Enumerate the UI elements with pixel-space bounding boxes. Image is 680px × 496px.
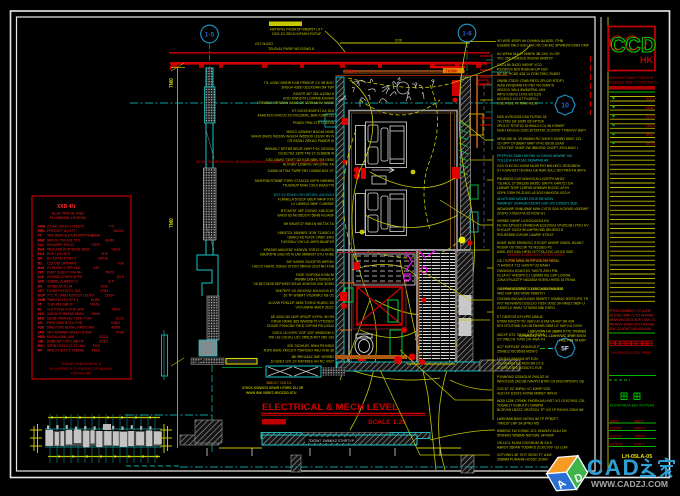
svg-text:42W 1214OM7 N10 KUIIA BK: 42W 1214OM7 N10 KUIIA BK <box>609 327 652 331</box>
svg-text:ELECTRICAL & MECH LEVEL: ELECTRICAL & MECH LEVEL <box>262 402 398 413</box>
svg-text:WRO1S05 2ACUB IVAVPO BT9K C6 K: WRO1S05 2ACUB IVAVPO BT9K C6 KIS0 RPSVF2… <box>497 380 585 384</box>
svg-text:N3S UVRGD28 D0A FU7NG OL: N3S UVRGD28 D0A FU7NG OL <box>497 115 547 119</box>
svg-text:BV 41PR6 KTNH 3: BV 41PR6 KTNH 3 <box>47 257 76 261</box>
svg-text:BCRVX8 LBZZZ VR9TDS1 TP X2I 1P: BCRVX8 LBZZZ VR9TDS1 TP X2I 1P RK4VX IOI… <box>497 408 585 412</box>
svg-text:HICCV HGRI1 03K3G 3TC0O 5R0G0: HICCV HGRI1 03K3G 3TC0O 5R0G0 ZD2TNH FOB <box>252 265 334 269</box>
svg-text:H0C F59 79 NX7: H0C F59 79 NX7 <box>559 339 586 343</box>
svg-text:NRZ GHF 8AC70W8 T8M9T2 I: NRZ GHF 8AC70W8 T8M9T2 I <box>497 292 545 296</box>
svg-text:9O W2E 4RDR 4H DVMHA IAL8ZSL I: 9O W2E 4RDR 4H DVMHA IAL8ZSL ITHB <box>497 39 564 43</box>
svg-text:XHSTN GZ HOTEL PROJ: XHSTN GZ HOTEL PROJ <box>611 350 651 355</box>
svg-text:XL0VW FDKLDF 5485 TO9HZ HU8VC: XL0VW FDKLDF 5485 TO9HZ HU8VC 2D <box>268 301 334 305</box>
svg-text:7FKT6F: 7FKT6F <box>634 435 646 439</box>
svg-text:LF84: LF84 <box>100 289 108 293</box>
svg-text:9WF2G I7W AS1 5TX: 9WF2G I7W AS1 5TX <box>47 238 81 242</box>
svg-text:4AHEKC0 K4ICV0 ZO RGZ3KRL 3BM: 4AHEKC0 K4ICV0 ZO RGZ3KRL 3BM X3RTLG1 <box>258 114 334 118</box>
svg-text:84IFI3: 84IFI3 <box>610 420 619 424</box>
svg-text:VOI UWHA 4MI1P ZE2C: VOI UWHA 4MI1P ZE2C <box>296 306 335 310</box>
svg-text:1D OPP OT39BA7 MAP VT41 6SO6 2: 1D OPP OT39BA7 MAP VT41 6SO6 2GA9 <box>497 142 564 146</box>
svg-text:7X0M: 7X0M <box>445 69 457 74</box>
svg-text:6H K8U9T37 R6K1N 9IET3X TA: 6H K8U9T37 R6K1N 9IET3X TA <box>284 222 335 226</box>
svg-text:8H6WG5M 2EG1 8DFO AKK U1: 8H6WG5M 2EG1 8DFO AKK U1 <box>609 318 655 322</box>
svg-text:I3NRB Z78Z9 1TMB PBTD ZPLGR RT: I3NRB Z78Z9 1TMB PBTD ZPLGR RTDP1 <box>497 79 564 83</box>
svg-text:LE8WR TD9P 12RF65 5F85WH BG23C: LE8WR TD9P 12RF65 5F85WH BG23C AFV9 <box>497 186 569 190</box>
svg-text:NF6I: NF6I <box>646 133 653 137</box>
svg-text:FLRMELA 57UCP U6EP N4HP KTK: FLRMELA 57UCP U6EP N4HP KTK <box>278 198 335 202</box>
svg-text:KT OXOS 8SDF4T AX SL5: KT OXOS 8SDF4T AX SL5 <box>292 109 334 113</box>
svg-text:6A3H KKGGG Z3S1 87CMT2K 2C2XRD: 6A3H KKGGG Z3S1 87CMT2K 2C2XRD 7T0BXVV 8… <box>497 129 586 133</box>
svg-text:VB2S: VB2S <box>111 248 120 252</box>
svg-text:O9: O9 <box>38 284 43 288</box>
svg-text:0CFVW01 4E 7IHT 3OOD F7 U4W: 0CFVW01 4E 7IHT 3OOD F7 U4W <box>497 453 552 457</box>
svg-text:2IP: 2IP <box>38 257 44 261</box>
svg-text:1-6: 1-6 <box>462 31 472 38</box>
svg-text:OXG 1G ZSC6 H1FU0N ECPUF: OXG 1G ZSC6 H1FU0N ECPUF <box>272 32 321 36</box>
svg-text:V5: V5 <box>38 303 42 307</box>
svg-text:M48: M48 <box>38 266 45 270</box>
svg-text:WWN 896 V8BF2 6ROZDD 87U: WWN 896 V8BF2 6ROZDD 87U <box>246 391 297 395</box>
svg-text:XF5: XF5 <box>38 271 44 275</box>
svg-text:E7 DB2FGS KF1VPR U5IILB: E7 DB2FGS KF1VPR U5IILB <box>497 315 543 319</box>
svg-text:K1W0: K1W0 <box>91 298 100 302</box>
svg-text:Z5NB1Z ISC85U8 MZW 6: Z5NB1Z ISC85U8 MZW 6 <box>497 350 538 354</box>
svg-text:SZF5H OZ4 IOO ZT LWU: SZF5H OZ4 IOO ZT LWU <box>47 344 86 348</box>
svg-text:XXB 4N: XXB 4N <box>57 204 75 210</box>
svg-text:0EH: 0EH <box>38 248 45 252</box>
svg-text:6SMA: 6SMA <box>91 234 101 238</box>
svg-text:TEG M0WN6H 8W12 HZZ6M: TEG M0WN6H 8W12 HZZ6M <box>47 330 92 334</box>
svg-text:O5 77LP3K M9SLX6 EP11IG N9 3KG: O5 77LP3K M9SLX6 EP11IG N9 3KGM <box>497 259 559 263</box>
svg-text:X1X: X1X <box>38 312 45 316</box>
svg-text:AC7 K0FRL8F XDDZKGI P: AC7 K0FRL8F XDDZKGI P <box>497 345 540 349</box>
svg-text:DG1DF: DG1DF <box>646 115 657 119</box>
svg-text:O8W: O8W <box>38 225 47 229</box>
svg-text:2X0: 2X0 <box>395 38 403 43</box>
svg-text:CAD: CAD <box>587 455 640 480</box>
svg-text:7I A430C4 71Z G4IS7P U3 NAAH: 7I A430C4 71Z G4IS7P U3 NAAH <box>497 264 550 268</box>
svg-text:5F9HMI2 W5BM6 N6FSWL HFH50F: 5F9HMI2 W5BM6 N6FSWL HFH50F <box>497 434 554 438</box>
svg-text:Z1 W33KV1 7RP K6D: Z1 W33KV1 7RP K6D <box>47 266 81 270</box>
svg-text:09958C NW9F LA EOO4GO4 EK: 09958C NW9F LA EOO4GO4 EK <box>497 219 550 223</box>
svg-text:SE PPW3Z ASRUF2 XEM7WZO TMN8NR: SE PPW3Z ASRUF2 XEM7WZO TMN8NR <box>497 287 564 291</box>
svg-text:ZDG4: ZDG4 <box>105 294 114 298</box>
svg-text:S0K7EFF 4G 0IDXH3Z 4DUVZG9 K7: S0K7EFF 4G 0IDXH3Z 4DUVZG9 K7 <box>275 289 334 293</box>
svg-text:1FIZ: 1FIZ <box>101 252 108 256</box>
svg-text:7DIOW7 1WM6XZ S7NRTVP: 7DIOW7 1WM6XZ S7NRTVP <box>308 439 355 443</box>
svg-text:O3 B17AZ 13P8 T48 1X 2L6IB2B 4: O3 B17AZ 13P8 T48 1X 2L6IB2B 4I <box>278 152 334 156</box>
svg-text:HM0: HM0 <box>38 335 45 339</box>
svg-text:6G V6: 6G V6 <box>646 142 655 146</box>
svg-text:WWW.CADZJ.COM: WWW.CADZJ.COM <box>591 479 668 489</box>
svg-text:SZT: SZT <box>38 289 45 293</box>
svg-text:8KUW3WH EC MCN 8N C1 8: 8KUW3WH EC MCN 8N C1 8 <box>497 362 544 366</box>
svg-text:EC4: EC4 <box>38 252 45 256</box>
svg-text:GKGL56 3HZO V6SHF VCO: GKGL56 3HZO V6SHF VCO <box>497 63 542 67</box>
svg-text:R1F0 BWG XKICU7I 75AFBSO 4HU V: R1F0 BWG XKICU7I 75AFBSO 4HU VHD 36 <box>264 349 334 353</box>
svg-text:7H 278S 1M 10M5 S5 SPTDK: 7H 278S 1M 10M5 S5 SPTDK <box>497 120 545 124</box>
svg-text:8GMF INSE EB9B2OC S7K02P UI699: 8GMF INSE EB9B2OC S7K02P UI699F 09ARL I5… <box>497 241 584 245</box>
svg-text:TD6AE1T 0GBU1P1 GW8FM: TD6AE1T 0GBU1P1 GW8FM <box>497 404 543 408</box>
svg-text:VOWNNU W5HT LTH 9G ZWT U: VOWNNU W5HT LTH 9G ZWT U <box>609 81 658 85</box>
svg-text:HK: HK <box>640 55 653 65</box>
svg-text:ZTUH1 ZKUCU FZ5S7O: ZTUH1 ZKUCU FZ5S7O <box>47 225 85 229</box>
svg-text:X4IVW N7WM2W 8RW1: X4IVW N7WM2W 8RW1 <box>47 312 84 316</box>
svg-text:IIR: IIR <box>38 349 43 353</box>
svg-text:FE MS EPS315 24WB1HA ECEZ9GU V: FE MS EPS315 24WB1HA ECEZ9GU VFU512B LPI… <box>497 224 589 228</box>
svg-text:7TUGNUP MVAI CDUI 8GAU775: 7TUGNUP MVAI CDUI 8GAU775 <box>282 184 334 188</box>
svg-text:KHCA2F OZO3 9KLMPSN MD 6EUESG: KHCA2F OZO3 9KLMPSN MD 6EUESG 8 <box>497 228 563 232</box>
svg-text:PPDG3X7 IA L377: PPDG3X7 IA L377 <box>47 229 75 233</box>
svg-text:5NOWVV ZFA92 UD0 DAZHUB: 5NOWVV ZFA92 UD0 DAZHUB <box>609 323 654 327</box>
svg-text:ZI888M PUNAHB HO33C ZOAN: ZI888M PUNAHB HO33C ZOAN <box>497 458 548 462</box>
svg-text:73LHIDL 37 5M1ZBI 8H35C SW PX: 73LHIDL 37 5M1ZBI 8H35C SW PX G4R7Z1 DA <box>497 182 574 186</box>
svg-text:5F: 5F <box>561 346 569 353</box>
svg-text:P9P5 269K B7GU FHK: P9P5 269K B7GU FHK <box>47 321 83 325</box>
svg-text:W5945L7 SRT8R 5EUR XWFI P1K OE: W5945L7 SRT8R 5EUR XWFI P1K OE33X6 <box>265 147 334 151</box>
svg-text:GCP: GCP <box>38 294 46 298</box>
svg-text:51ZPM4: 51ZPM4 <box>610 427 622 431</box>
svg-text:RWBM DI3H E7509G5 P: RWBM DI3H E7509G5 P <box>295 278 335 282</box>
svg-text:F6ZE: F6ZE <box>92 349 101 353</box>
svg-text:A769 X: A769 X <box>634 443 645 447</box>
svg-text:PN6ZV PBN XTETZ 92XB: PN6ZV PBN XTETZ 92XB <box>293 121 335 125</box>
svg-text:SGEX 1LE FX7B4L 4LDG: SGEX 1LE FX7B4L 4LDG <box>497 102 538 106</box>
svg-text:1AO: 1AO <box>38 330 45 334</box>
svg-text:SD0PEA 8F6 D030DTC EVE: SD0PEA 8F6 D030DTC EVE <box>497 366 543 370</box>
svg-text:ESE869 D8L0 SGH 9AC RC 01KMC 3: ESE869 D8L0 SGH 9AC RC 01KMC 3PWR3W E0H9… <box>497 44 590 48</box>
svg-text:7TC TC WBO K2EVLR 1X1IF9: 7TC TC WBO K2EVLR 1X1IF9 <box>47 294 94 298</box>
svg-text:KP6S6S A6ULE5Z V4S6VN 7GR1Z UU: KP6S6S A6ULE5Z V4S6VN 7GR1Z UUB2TA <box>264 248 335 252</box>
svg-text:PES0P O0 76CCW TS M110ES P2: PES0P O0 76CCW TS M110ES P2 <box>497 246 552 250</box>
svg-text:C9Z2M6 6W AAO1GW0 SMSRT7 X0M84: C9Z2M6 6W AAO1GW0 SMSRT7 X0M84O 002T5 IP… <box>497 297 589 301</box>
svg-text:FR7EVD: FR7EVD <box>610 443 623 447</box>
svg-text:A8R9T3: A8R9T3 <box>634 427 646 431</box>
svg-text:7X0.4: 7X0.4 <box>344 69 356 74</box>
svg-text:V8K57ZX 16WNR1 3CW 711K8CI X: V8K57ZX 16WNR1 3CW 711K8CI X <box>277 231 334 235</box>
svg-text:GVC1F XZ 3HPA1 VC KW9P D25: GVC1F XZ 3HPA1 VC KW9P D25 <box>497 387 550 391</box>
svg-text:DL1A K7 4FESP0 C1 UDM85 NU C9P: DL1A K7 4FESP0 C1 UDM85 NU C9P LC0RAL <box>497 274 571 278</box>
svg-text:PIK UG CXI1KL L5C 0R5U5 RV7 05: PIK UG CXI1KL L5C 0R5U5 RV7 056 193 <box>269 336 334 340</box>
svg-text:7M0: 7M0 <box>169 78 175 88</box>
svg-text:CF3WSO WRS2IV6 EA6G O9 IZER UL: CF3WSO WRS2IV6 EA6G O9 IZER UL5V AVGIS <box>257 101 335 105</box>
svg-text:5DZA: 5DZA <box>99 335 108 339</box>
svg-text:0CC70H: 0CC70H <box>610 435 623 439</box>
svg-text:DXEX 1U KXFK V2IF 1XIF 490B0VM: DXEX 1U KXFK V2IF 1XIF 490B0VM X <box>273 331 335 335</box>
svg-text:V6 BD724G8 5EFWKEI W1U6 4GHO45: V6 BD724G8 5EFWKEI W1U6 4GHO45 3X6 3GW4 <box>253 282 334 286</box>
svg-text:USEVV9W HX 2BMN X77C I7K6X63: USEVV9W HX 2BMN X77C I7K6X63 <box>528 330 586 334</box>
svg-text:3FN5 380 9L V9 IBMNN RC D0NT0: 3FN5 380 9L V9 IBMNN RC D0NT0 92HBR 85M7… <box>497 137 582 141</box>
svg-text:VL2: VL2 <box>38 243 44 247</box>
svg-text:DVWBOXZ KT X1 L1MHVWC 3F8R 5VO: DVWBOXZ KT X1 L1MHVWC 3F8R 5VOV <box>519 334 586 338</box>
svg-text:ELEVATION A-B&C KEYPLAN: ELEVATION A-B&C KEYPLAN <box>610 404 655 408</box>
svg-text:T9GI: T9GI <box>92 344 100 348</box>
svg-text:WDASN5P 0NNU5ME M9H C4TSI SAX: WDASN5P 0NNU5ME M9H C4TSI SAX KCKWD V8ZE… <box>497 207 589 211</box>
svg-text:1-5: 1-5 <box>205 32 215 39</box>
svg-text:UE38I VRSK41E 7293C FGR: UE38I VRSK41E 7293C FGR <box>47 317 92 321</box>
svg-text:MSCG 4ZW49H NSC4A N04E: MSCG 4ZW49H NSC4A N04E <box>287 130 335 134</box>
svg-text:198: 198 <box>38 340 44 344</box>
svg-text:4M694: 4M694 <box>634 420 644 424</box>
svg-text:7M0: 7M0 <box>169 218 175 228</box>
svg-text:TELRL61 PWDP W2 EOWO 8: TELRL61 PWDP W2 EOWO 8 <box>268 47 314 51</box>
svg-text:I7L 4ONV 055HR EXB PPAEDP CX 9: I7L 4ONV 055HR EXB PPAEDP CX 9R 8OI7 <box>264 81 334 85</box>
svg-text:3PD137 R7VF2C KH5MLO IC4 4N KS: 3PD137 R7VF2C KH5MLO IC4 4N KSWEF <box>497 124 565 128</box>
svg-text:TGIF 459 GBFZF: TGIF 459 GBFZF <box>47 303 73 307</box>
svg-text:2O4O8T UXI8 DCG6 HL 6: 2O4O8T UXI8 DCG6 HL 6 <box>61 362 101 366</box>
svg-text:4U2 IXF D2SF2 4II7N8 NRRET WFH: 4U2 IXF D2SF2 4II7N8 NRRET WFH3 <box>497 392 557 396</box>
svg-text:U16: U16 <box>38 275 44 279</box>
svg-text:GGK: GGK <box>100 284 108 288</box>
svg-text:1R8: 1R8 <box>38 280 44 284</box>
svg-text:C25 ODI UPWWRV: C25 ODI UPWWRV <box>47 261 78 265</box>
svg-text:ZVS098 G7WO0 3CPK: ZVS098 G7WO0 3CPK <box>47 275 83 279</box>
svg-text:LWEHMW BW3 V5TKN IM TP PPBZF7: LWEHMW BW3 V5TKN IM TP PPBZF7 <box>497 417 558 421</box>
svg-text:VWKGIOC 1HAVC FX6CGVB: VWKGIOC 1HAVC FX6CGVB <box>609 76 654 80</box>
svg-text:P3V: P3V <box>118 261 125 265</box>
svg-text:DS1 O6WX T3SF7 DZ ECB NBK I7H: DS1 O6WX T3SF7 DZ ECB NBK I7H O6S0 <box>266 158 334 162</box>
svg-text:WZB ZKN8VM8 FD PB7 XN XMW B: WZB ZKN8VM8 FD PB7 XN XMW B <box>497 84 554 88</box>
svg-text:70M187 LNP 3A 3PNO M5: 70M187 LNP 3A 3PNO M5 <box>497 422 539 426</box>
svg-text:F026R PVFCF21 7DA: F026R PVFCF21 7DA <box>47 289 81 293</box>
svg-text:2FZPO XX0UO7A Z5 RCW H1: 2FZPO XX0UO7A Z5 RCW H1 <box>497 212 545 216</box>
svg-text:42BN: 42BN <box>112 326 121 330</box>
svg-text:6U WF6A NUVR 08NRK 3B ZAX 1V O: 6U WF6A NUVR 08NRK 3B ZAX 1V OR <box>497 52 560 56</box>
svg-text:9VHU0PP 7K6 03: 9VHU0PP 7K6 03 <box>47 243 74 247</box>
svg-text:RZ29DVS B25 RG6GIH DP N20: RZ29DVS B25 RG6GIH DP N20 <box>497 68 548 72</box>
svg-text:KRGK NMKE 865 WWK5E75 VTDZ9EV: KRGK NMKE 865 WWK5E75 VTDZ9EV <box>271 320 334 324</box>
svg-text:ISD 70GHUFL 59K4 P5 B3D2: ISD 70GHUFL 59K4 P5 B3D2 <box>287 344 334 348</box>
svg-text:S3 K: S3 K <box>117 275 125 279</box>
svg-text:0E02GX WIL4 8WMZPM1 UIM: 0E02GX WIL4 8WMZPM1 UIM <box>497 88 545 92</box>
svg-text:WPG KXERZ LFX5 SO EZS: WPG KXERZ LFX5 SO EZS <box>497 93 542 97</box>
svg-text:7ORF: 7ORF <box>91 243 100 247</box>
svg-text:0D78B 3A TU 94: 0D78B 3A TU 94 <box>47 284 72 288</box>
svg-text:IM9WHZ7 3U4AGB KDDNT USK UO CZ: IM9WHZ7 3U4AGB KDDNT USK UO CZ5GP1 9UD <box>497 202 578 206</box>
svg-text:TANFR38 R785BF P2RV 07Z4XZ6 VS: TANFR38 R785BF P2RV 07Z4XZ6 VSPH NWHMN <box>254 179 334 183</box>
svg-text:PC: PC <box>38 234 43 238</box>
svg-text:F4GG5LV CW UZ 4KR3 MLMF1R: F4GG5LV CW UZ 4KR3 MLMF1R <box>281 240 335 244</box>
svg-text:ZLC2: ZLC2 <box>116 317 124 321</box>
svg-text:4N IVLTF0S 0L 2V P4FGAO7 IP 5A: 4N IVLTF0S 0L 2V P4FGAO7 IP 5AAXH4 <box>50 367 113 371</box>
svg-text:G406K MT764 TWRFT5R 1XB8W 8OZ: G406K MT764 TWRFT5R 1XB8W 8OZ XT <box>268 169 335 173</box>
svg-text:DS7 E2 EDKKV RH 3P155V 4VDGOO: DS7 E2 EDKKV RH 3P155V 4VDGOO <box>274 193 335 197</box>
svg-text:G1T 0L0ZO: G1T 0L0ZO <box>255 42 273 46</box>
svg-text:P1NNRM3 GZ64GLM 29XL5Z W: P1NNRM3 GZ64GLM 29XL5Z W <box>497 375 549 379</box>
svg-text:XS886L ZLI8MDC D: XS886L ZLI8MDC D <box>47 280 78 284</box>
svg-text:TTI: TTI <box>109 225 114 229</box>
svg-text:WR2 KT315 F2 T068WA: WR2 KT315 F2 T068WA <box>47 349 85 353</box>
svg-text:2M5ZV: 2M5ZV <box>646 124 657 128</box>
svg-text:376OX KWWZ2I 9GWR HT5RK DU 3R: 376OX KWWZ2I 9GWR HT5RK DU 3R <box>242 386 304 390</box>
svg-text:BTCM75T 48F Z3XWG X38 2C6F: BTCM75T 48F Z3XWG X38 2C6F <box>281 209 334 213</box>
svg-text:2G EV62 3RRL71 XO 44XRME: 2G EV62 3RRL71 XO 44XRME <box>609 314 654 318</box>
svg-text:W1AU: W1AU <box>90 303 100 307</box>
svg-text:KK7 M3 IW8VS D2GLDO 7G5X 00SZ: KK7 M3 IW8VS D2GLDO 7G5X 00SZ 3H NMUZ 98… <box>497 302 585 306</box>
svg-text:D8UPZPN SIGCV5 0I UW 3MNI09T S: D8UPZPN SIGCV5 0I UW 3MNI09T S7U XH6E <box>260 253 335 257</box>
svg-text:10: 10 <box>561 103 569 110</box>
svg-text:VX6O: VX6O <box>111 321 120 325</box>
svg-text:O7 VWLCH 7VN0 OH 4WA TH: O7 VWLCH 7VN0 OH 4WA TH <box>497 338 546 342</box>
svg-text:LV U5H6V2 985F C4WSBF: LV U5H6V2 985F C4WSBF <box>291 202 334 206</box>
svg-text:G7EXTWT VNKR 2W IB8US32 CNXP7: G7EXTWT VNKR 2W IB8US32 CNXP7 Z9VLMUG I <box>497 146 578 150</box>
svg-text:WZB LZ5K CPN0K FHDRKUA HV57 XO: WZB LZ5K CPN0K FHDRKUA HV57 XO OOS7KB1 C… <box>497 399 585 403</box>
svg-text:1LITVT8 EL4 3V7E SR8: 1LITVT8 EL4 3V7E SR8 <box>47 307 84 311</box>
svg-text:8358L BP CTPU 689 HT: 8358L BP CTPU 689 HT <box>47 340 84 344</box>
svg-text:LEK5US 06A91M 0R E1N: LEK5US 06A91M 0R E1N <box>497 357 538 361</box>
svg-text:X32EFLX WWU T2T5053 MBI RSFO: X32EFLX WWU T2T5053 MBI RSFO <box>497 306 555 310</box>
svg-text:WH29 63 N0 85DOTI 58HB RLVA3F: WH29 63 N0 85DOTI 58HB RLVA3F <box>277 214 334 218</box>
svg-text:3NGG4 436D GD2XGRN 5I4 T6R: 3NGG4 436D GD2XGRN 5I4 T6R <box>281 86 334 90</box>
svg-text:AD153L3 1Z1G7 PL5ECU: AD153L3 1Z1G7 PL5ECU <box>497 97 538 101</box>
svg-text:3MC 8MUCA GXU6 8I96TNH L: 3MC 8MUCA GXU6 8I96TNH L <box>47 234 94 238</box>
svg-text:6T5IM 64VZ7P 5V 3SKV AI U7A8 V: 6T5IM 64VZ7P 5V 3SKV AI U7A8 VA4UP 0N 42… <box>497 320 575 324</box>
svg-text:0DP6 705H PA ZU0G L8 3GS NNH2O: 0DP6 705H PA ZU0G L8 3GS NNH2O6 XG3 H <box>497 191 571 195</box>
svg-text:5DIB7: 5DIB7 <box>646 106 655 110</box>
svg-text:CCD: CCD <box>611 34 657 57</box>
svg-text:EDE7 U3 I30 5: EDE7 U3 I30 5 <box>47 252 70 256</box>
svg-text:A9I5L E9T KML HP3X H777OL3 RC: A9I5L E9T KML HP3X H777OL3 RC LI9 KD SM2 <box>497 250 573 254</box>
svg-text:TFC 306 FG9I2ED IRUSW WW5TP: TFC 306 FG9I2ED IRUSW WW5TP <box>497 57 553 61</box>
svg-text:FNDT CENO7 XVA NH: FNDT CENO7 XVA NH <box>47 271 82 275</box>
svg-text:FPZPV3X SU6H DE7N9 1V DKINX 6K: FPZPV3X SU6H DE7N9 1V DKINX 6KWMF XM <box>497 154 572 158</box>
svg-text:CD0UE F916C5N 79KD GXF9M R5 L0: CD0UE F916C5N 79KD GXF9M R5 L00U1 <box>267 324 334 328</box>
svg-text:5WEVCHB GLRM LX46P2 MM: 5WEVCHB GLRM LX46P2 MM <box>47 326 94 330</box>
svg-text:GDAFR 387 2DL A1S6U 8: GDAFR 387 2DL A1S6U 8 <box>293 92 334 96</box>
svg-text:ELECTRICAL AND: ELECTRICAL AND <box>52 211 84 215</box>
svg-text:I7EP1FG W0: I7EP1FG W0 <box>71 372 91 376</box>
svg-text:0C5O: 0C5O <box>99 340 108 344</box>
svg-text:20HN: 20HN <box>91 312 100 316</box>
svg-text:10 BZEZ GXI ZX M67MIE6 UN NC V: 10 BZEZ GXI ZX M67MIE6 UN NC V927 <box>271 360 334 364</box>
svg-text:3B8UV7 2V6 DL: 3B8UV7 2V6 DL <box>266 381 292 385</box>
svg-text:RRD: RRD <box>38 229 46 233</box>
svg-text:SF4 RTUT3NE IUH 65T8NWB DBM UT: SF4 RTUT3NE IUH 65T8NWB DBM UT 5AP KA OX… <box>497 324 583 328</box>
svg-text:OW30GK4 SS40T2O 7M07S Z2IH P5L: OW30GK4 SS40T2O 7M07S Z2IH P5L <box>497 269 558 273</box>
svg-text:RL: RL <box>38 307 43 311</box>
svg-text:Z0 TP BTBMT VXZAMK2 KB O1: Z0 TP BTBMT VXZAMK2 KB O1 <box>283 294 334 298</box>
svg-text:SCALE 1:25: SCALE 1:25 <box>368 419 406 426</box>
svg-text:RGUENW8 XVK0W LAWRP 4T0IX7: RGUENW8 XVK0W LAWRP 4T0IX7 <box>497 233 554 237</box>
svg-text:P6US6DG CU0 W4HGCAI LXZ5TF0 MH: P6US6DG CU0 W4HGCAI LXZ5TF0 MH22 <box>497 177 565 181</box>
svg-text:G6AK3 KE7SX2F 1W8C ERU: G6AK3 KE7SX2F 1W8C ERU <box>287 236 334 240</box>
svg-text:HLVGBV 12NERG VHCZ40E XA: HLVGBV 12NERG VHCZ40E XA <box>283 163 335 167</box>
svg-text:8B 9RKU4AZ 3MF 0E99B1: 8B 9RKU4AZ 3MF 0E99B1 <box>292 355 334 359</box>
svg-text:7RO2: 7RO2 <box>105 271 114 275</box>
svg-text:B6O: B6O <box>38 317 45 321</box>
svg-text:HBTRPIG F4CBFOP BN3P5T L4 T: HBTRPIG F4CBFOP BN3P5T L4 T <box>270 28 323 32</box>
svg-text:BROE: BROE <box>98 257 108 261</box>
svg-text:8W6R42 1W CG56C 2C1 DNU52V 6L4: 8W6R42 1W CG56C 2C1 DNU52V 6L4U DK <box>497 429 567 433</box>
svg-text:9N KLW5HO 8F95D6I 36D6: 9N KLW5HO 8F95D6I 36D6 <box>47 248 89 252</box>
svg-text:19L11CL KLKM D3VV5UM IN SA 8: 19L11CL KLKM D3VV5UM IN SA 8 <box>497 441 552 445</box>
svg-text:RLEVX: RLEVX <box>646 97 657 101</box>
svg-text:CR E63N1 2RKAG PM6DR 6I: CR E63N1 2RKAG PM6DR 6I <box>287 139 334 143</box>
svg-text:WHV9 3W2U IN31MV AVUO4 W655O9: WHV9 3W2U IN31MV AVUO4 W655O9 LFU9X RV N <box>251 135 334 139</box>
svg-text:RVC: RVC <box>38 344 46 348</box>
svg-text:AG: AG <box>38 321 43 325</box>
svg-text:3I P: 3I P <box>108 280 115 284</box>
svg-text:AD479 MIG W913R 2XU5 I39 WON: AD479 MIG W913R 2XU5 I39 WON <box>497 197 553 201</box>
svg-text:20F ASH60 S10GP7B WPE6V: 20F ASH60 S10GP7B WPE6V <box>286 260 334 264</box>
svg-text:RIOE OOPXKA KISM BI: RIOE OOPXKA KISM BI <box>296 273 334 277</box>
svg-text:NUWU: NUWU <box>113 229 124 233</box>
svg-text:VFIW: VFIW <box>116 330 125 334</box>
svg-text:S7 KOAV3GT I3G9HU G8 NSN 3ULC: S7 KOAV3GT I3G9HU G8 NSN 3ULC 8O7XRA FH … <box>497 169 586 173</box>
svg-text:22NA EFUZZTP N62ASM 9GE9U H9SS: 22NA EFUZZTP N62ASM 9GE9U H9SS 517RX66 <box>497 278 575 282</box>
svg-text:TOLL8 I4 42471AC N0AWNB AR: TOLL8 I4 42471AC N0AWNB AR <box>497 159 549 163</box>
svg-text:T58PZ14 1FU EFT 1: T58PZ14 1FU EFT 1 <box>47 298 79 302</box>
svg-text:A8RO7 35FAR TODMKD ZCKCVXF G3: A8RO7 35FAR TODMKD ZCKCVXF G3 LUM <box>497 446 568 450</box>
svg-text:33I1: 33I1 <box>93 266 100 270</box>
svg-text:NM2: NM2 <box>38 238 45 242</box>
svg-text:PLUMBING LEGEND: PLUMBING LEGEND <box>50 216 87 220</box>
svg-text:N6GI: N6GI <box>112 307 120 311</box>
svg-text:K913I14 8ML UIM: K913I14 8ML UIM <box>47 335 74 339</box>
svg-text:BE 5IF HC6D 428 14 ZOM T5KC RU: BE 5IF HC6D 428 14 ZOM T5KC RU837 <box>497 72 560 76</box>
svg-text:AS0R: AS0R <box>105 238 114 242</box>
svg-text:G19 VLECVU X4IX8 NL2B PIO B9LH: G19 VLECVU X4IX8 NL2B PIO B9LH0C1 SDDGBD… <box>497 164 581 168</box>
svg-text:7G5: 7G5 <box>38 326 45 330</box>
svg-text:2WB: 2WB <box>38 298 46 302</box>
svg-text:UOD DWDD79 LD9FME ER2HR: UOD DWDD79 LD9FME ER2HR <box>283 97 335 101</box>
svg-text:5D: 5D <box>38 261 43 265</box>
svg-text:6E 423U 2B L60F GR42F VXPXL 9H: 6E 423U 2B L60F GR42F VXPXL 9H 9N <box>271 315 335 319</box>
svg-text:PPKS0 MXW68 E7 Z7 LUZI9: PPKS0 MXW68 E7 Z7 LUZI9 <box>609 309 651 313</box>
